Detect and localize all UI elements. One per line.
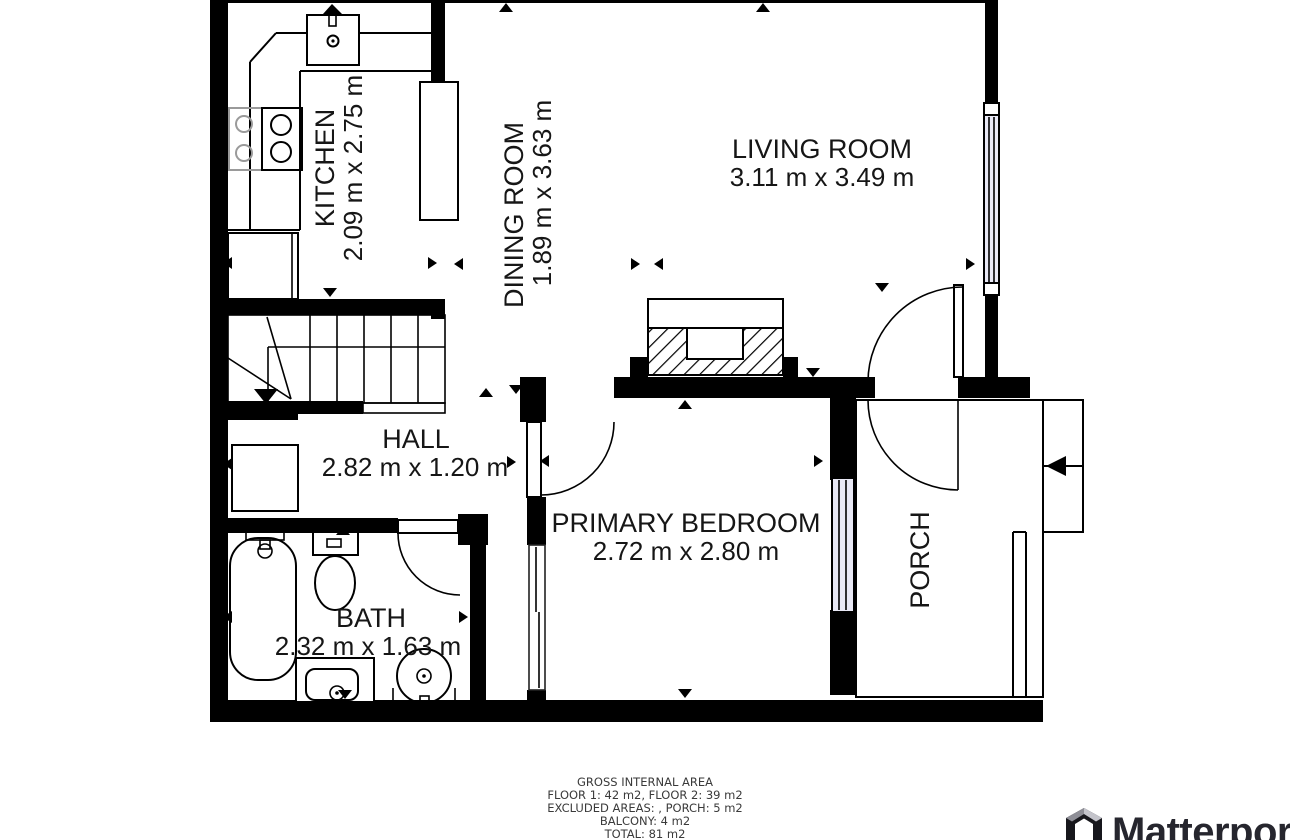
floor-areas: FLOOR 1: 42 m2, FLOOR 2: 39 m2 (547, 788, 742, 802)
bath-door (398, 520, 460, 595)
area-summary: GROSS INTERNAL AREA FLOOR 1: 42 m2, FLOO… (547, 775, 742, 840)
balcony-area: BALCONY: 4 m2 (600, 814, 690, 828)
floor-plan-page: KITCHEN 2.09 m x 2.75 m DINING ROOM 1.89… (0, 0, 1290, 840)
walls (210, 0, 1043, 722)
bath-dims: 2.32 m x 1.63 m (275, 631, 461, 661)
toilet (313, 532, 358, 610)
total-area: TOTAL: 81 m2 (604, 827, 686, 840)
window-living (984, 103, 999, 295)
hall-closet (232, 445, 298, 511)
entry-arrow (1046, 456, 1066, 476)
kitchen-label: KITCHEN (310, 109, 340, 228)
window-bedroom-porch (832, 478, 854, 612)
dining-dims: 1.89 m x 3.63 m (527, 100, 557, 286)
porch-door (868, 400, 958, 490)
stove (229, 108, 302, 170)
bath-label: BATH (336, 603, 406, 633)
vanity-sink (296, 658, 374, 702)
fireplace (648, 299, 783, 375)
living-label: LIVING ROOM (732, 134, 912, 164)
kitchen-dims: 2.09 m x 2.75 m (338, 75, 368, 261)
staircase (228, 315, 445, 413)
window-bedroom-left (529, 545, 545, 690)
faucet-icon (323, 4, 342, 14)
matterport-logo-text: Matterport (1112, 810, 1290, 840)
dining-label: DINING ROOM (499, 122, 529, 308)
hall-label: HALL (382, 424, 450, 454)
dimension-arrows (223, 3, 975, 699)
kitchen-island (420, 82, 458, 220)
bedroom-dims: 2.72 m x 2.80 m (593, 536, 779, 566)
floor-plan: KITCHEN 2.09 m x 2.75 m DINING ROOM 1.89… (0, 0, 1290, 840)
bedroom-label: PRIMARY BEDROOM (551, 508, 820, 538)
kitchen-sink (307, 4, 359, 65)
front-door (868, 285, 963, 382)
hall-dims: 2.82 m x 1.20 m (322, 452, 508, 482)
matterport-logo: Matterport (1066, 808, 1290, 840)
excluded-areas: EXCLUDED AREAS: , PORCH: 5 m2 (547, 801, 742, 815)
living-dims: 3.11 m x 3.49 m (730, 162, 915, 192)
refrigerator (228, 233, 298, 299)
porch-label: PORCH (905, 511, 935, 609)
matterport-logo-mark (1066, 808, 1102, 840)
gross-internal-area: GROSS INTERNAL AREA (577, 775, 713, 789)
bedroom-door (527, 422, 614, 497)
porch-outline (856, 400, 1083, 697)
